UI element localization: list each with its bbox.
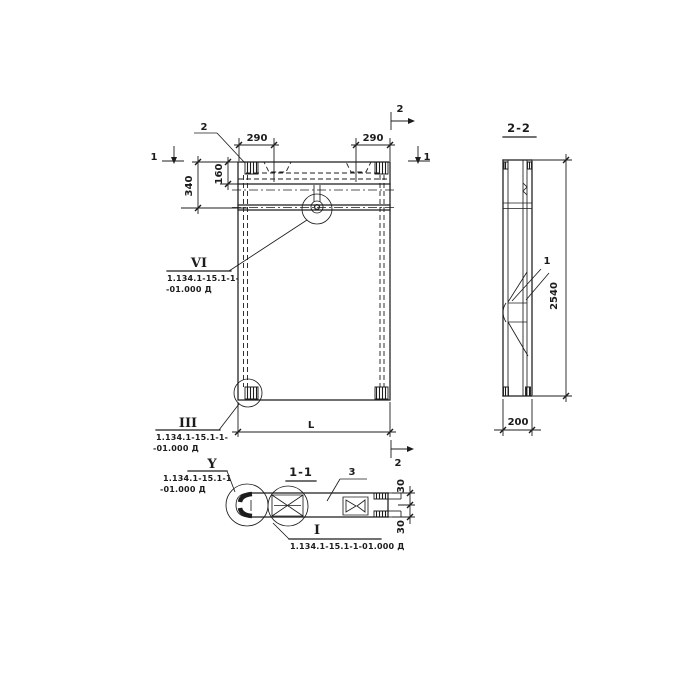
marker-2-top-label: 2 (397, 104, 404, 115)
detail-i-ref1: 1.134.1-15.1-1-01.000 Д (290, 542, 405, 551)
detail-i-numeral: I (314, 523, 320, 538)
section-2-2-body (503, 160, 532, 396)
detail-circle-y (226, 484, 268, 526)
detail-label-y: Y 1.134.1-15.1-1 -01.000 Д (160, 457, 235, 494)
detail-label-iii: III 1.134.1-15.1-1- -01.000 Д (153, 416, 228, 453)
marker-1-left-label: 1 (151, 152, 158, 163)
section-2-2-title-text: 2-2 (507, 121, 531, 135)
technical-drawing: VI 1.134.1-15.1-1- -01.000 Д III 1.134.1… (0, 0, 700, 700)
dim-200: 200 (494, 399, 541, 436)
dim-290-right: 290 (351, 133, 395, 182)
plan-1-1-view: 1-1 3 (160, 457, 415, 551)
detail-y-numeral: Y (206, 457, 217, 472)
dim-30-bottom-value: 30 (396, 520, 407, 534)
callout-2-top: 2 (194, 122, 245, 163)
plan-1-1-title-text: 1-1 (289, 465, 313, 479)
dim-30-top-value: 30 (396, 479, 407, 493)
dim-340-value: 340 (184, 176, 195, 197)
section-marker-2-top: 2 (391, 104, 415, 130)
plan-bar-body (226, 484, 401, 526)
dim-L: L (232, 402, 396, 437)
callout-3-label: 3 (349, 467, 356, 478)
dim-290-left-value: 290 (247, 133, 268, 144)
dim-30-pair: 30 30 (392, 479, 415, 534)
dim-290-right-value: 290 (363, 133, 384, 144)
callout-1: 1 (512, 256, 551, 301)
detail-y-ref2: -01.000 Д (160, 485, 206, 494)
dim-2540: 2540 (533, 154, 572, 402)
detail-vi-numeral: VI (190, 256, 207, 271)
dim-200-value: 200 (508, 417, 529, 428)
dim-2540-value: 2540 (549, 282, 560, 310)
dim-L-value: L (308, 420, 315, 431)
callout-1-label: 1 (544, 256, 551, 267)
detail-label-i: I 1.134.1-15.1-1-01.000 Д (273, 523, 405, 551)
detail-label-vi: VI 1.134.1-15.1-1- -01.000 Д (166, 256, 239, 294)
callout-3: 3 (327, 467, 367, 501)
plan-1-1-title: 1-1 (286, 465, 316, 481)
detail-iii-ref1: 1.134.1-15.1-1- (156, 433, 228, 442)
section-marker-1-right: 1 (408, 146, 431, 164)
anchor-blocks (245, 162, 388, 399)
marker-2-bottom-label: 2 (395, 458, 402, 469)
dim-290-left: 290 (234, 133, 279, 182)
elevation-view: VI 1.134.1-15.1-1- -01.000 Д III 1.134.1… (151, 104, 431, 469)
lifting-hook-detail (229, 185, 332, 271)
detail-vi-ref1: 1.134.1-15.1-1- (167, 274, 239, 283)
detail-iii-ref2: -01.000 Д (153, 444, 199, 453)
detail-iii-numeral: III (179, 416, 197, 431)
section-2-2-title: 2-2 (503, 121, 536, 137)
section-2-2-view: 2-2 1 (494, 121, 572, 436)
section-marker-2-bottom: 2 (391, 440, 414, 469)
callout-2-label: 2 (201, 122, 208, 133)
detail-vi-ref2: -01.000 Д (166, 285, 212, 294)
keyway-recesses (264, 162, 371, 172)
section-marker-1-left: 1 (151, 146, 184, 164)
dim-160-value: 160 (214, 164, 225, 185)
detail-y-ref1: 1.134.1-15.1-1 (163, 474, 232, 483)
drawing-sheet: VI 1.134.1-15.1-1- -01.000 Д III 1.134.1… (0, 0, 700, 700)
marker-1-right-label: 1 (424, 152, 431, 163)
